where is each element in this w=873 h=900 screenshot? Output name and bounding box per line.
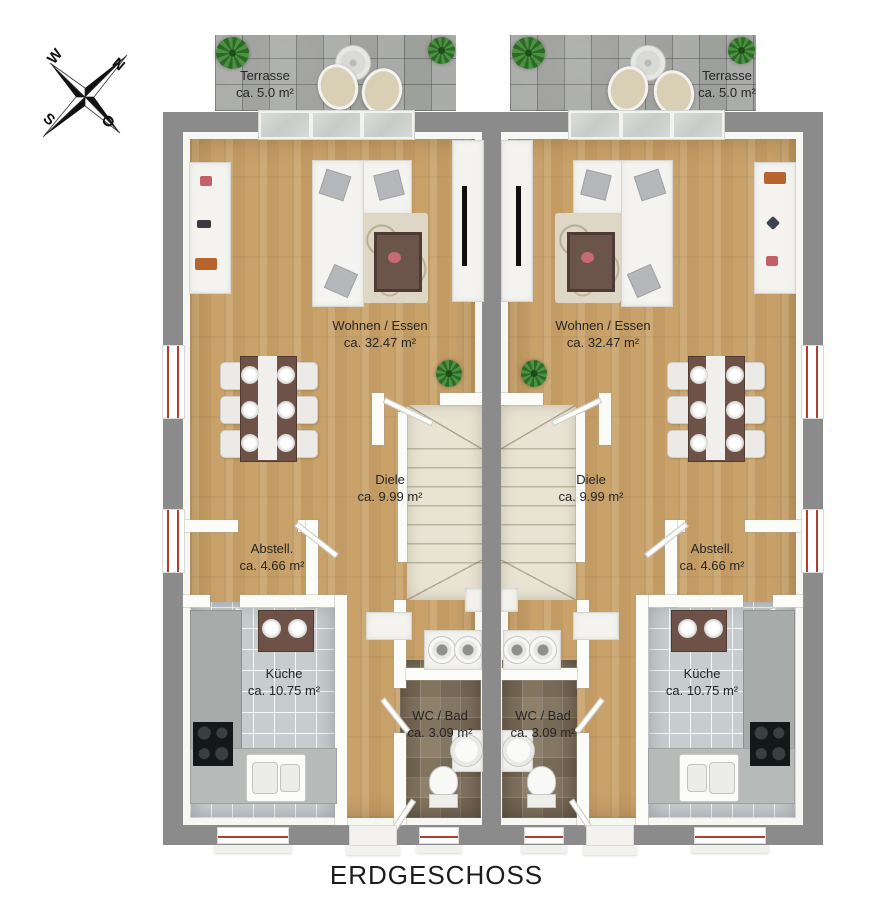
terrace-door-right [568, 110, 725, 140]
terrace-plant-icon [428, 37, 455, 64]
room-area: ca. 3.09 m² [473, 725, 613, 742]
entrance-step [583, 845, 637, 855]
plate [690, 401, 708, 419]
room-name: Diele [521, 472, 661, 489]
kitchen-sink-right [679, 754, 739, 802]
room-label-kueche-left: Küche ca. 10.75 m² [214, 666, 354, 699]
room-area: ca. 4.66 m² [202, 558, 342, 575]
room-area: ca. 4.66 m² [642, 558, 782, 575]
window-kitchen-left [218, 828, 288, 843]
room-label-kueche-right: Küche ca. 10.75 m² [632, 666, 772, 699]
tv-left [462, 186, 467, 266]
stair-landing-top-left [407, 405, 482, 449]
terrace-plant-icon [728, 37, 755, 64]
wall-diele-top-left [440, 393, 482, 405]
window-wc-right [525, 828, 563, 843]
cooktop-left [193, 722, 233, 766]
window-abstell-right [802, 510, 823, 572]
window-living-left [163, 346, 184, 418]
plate [726, 401, 744, 419]
room-label-wohnen-right: Wohnen / Essen ca. 32.47 m² [533, 318, 673, 351]
room-area: ca. 32.47 m² [310, 335, 450, 352]
toilet-tank-right [527, 794, 556, 808]
page-title: ERDGESCHOSS [0, 860, 873, 891]
kitchen-sink-left [246, 754, 306, 802]
plate [726, 366, 744, 384]
room-name: Diele [320, 472, 460, 489]
plate [690, 366, 708, 384]
room-name: Küche [632, 666, 772, 683]
understair-niche-right [501, 588, 518, 612]
room-area: ca. 9.99 m² [320, 489, 460, 506]
room-area: ca. 5.0 m² [195, 85, 335, 102]
room-label-diele-left: Diele ca. 9.99 m² [320, 472, 460, 505]
glass-pane [364, 113, 412, 137]
wall-kitchen-top-left [240, 595, 347, 607]
wall-kitchen-side-right [636, 595, 648, 825]
wall-abstell-right [745, 520, 803, 532]
room-area: ca. 9.99 m² [521, 489, 661, 506]
wall-kitchen-top-right [773, 595, 803, 607]
floorplan-erdgeschoss: W N S O [0, 0, 873, 900]
window-sill [416, 845, 462, 853]
plate [704, 619, 723, 638]
room-name: Terrasse [657, 68, 797, 85]
staircase-steps-left [407, 448, 482, 566]
glass-pane [571, 113, 619, 137]
entrance-step [346, 845, 400, 855]
glass-pane [674, 113, 722, 137]
room-name: Wohnen / Essen [533, 318, 673, 335]
toilet-right [527, 766, 556, 796]
washing-machine-icon [428, 636, 456, 664]
plate [678, 619, 697, 638]
room-label-abstell-right: Abstell. ca. 4.66 m² [642, 541, 782, 574]
washing-machine-icon [503, 636, 531, 664]
entrance-door-left [350, 826, 396, 845]
room-name: Wohnen / Essen [310, 318, 450, 335]
sink-drainer [687, 764, 707, 792]
plate [288, 619, 307, 638]
flower-decor [581, 252, 594, 263]
staircase-steps-right [501, 448, 576, 566]
decor-item [764, 172, 786, 184]
plate [262, 619, 281, 638]
toilet-tank-left [429, 794, 458, 808]
window-sill [521, 845, 567, 853]
terrace-door-left [258, 110, 415, 140]
plate [241, 366, 259, 384]
plate [241, 434, 259, 452]
room-name: WC / Bad [473, 708, 613, 725]
plant-icon [521, 360, 547, 387]
decor-item [195, 258, 217, 270]
wall-kitchen-top-left [183, 595, 210, 607]
entrance-door-right [587, 826, 633, 845]
window-wc-left [420, 828, 458, 843]
plant-icon [436, 360, 462, 387]
wall-kitchen-top-right [636, 595, 743, 607]
hall-wardrobe-right [573, 612, 619, 640]
room-label-terrasse-right: Terrasse ca. 5.0 m² [657, 68, 797, 101]
sink-drainer [280, 764, 300, 792]
plate [277, 434, 295, 452]
glass-pane [623, 113, 671, 137]
hall-wardrobe-left [366, 612, 412, 640]
stair-landing-top-right [501, 405, 576, 449]
understair-niche-left [465, 588, 482, 612]
terrace-plant-icon [216, 37, 249, 69]
room-area: ca. 32.47 m² [533, 335, 673, 352]
table-runner [706, 356, 725, 460]
wall-diele-top-right [501, 393, 543, 405]
plate [277, 366, 295, 384]
room-label-wohnen-left: Wohnen / Essen ca. 32.47 m² [310, 318, 450, 351]
room-label-terrasse-left: Terrasse ca. 5.0 m² [195, 68, 335, 101]
wall-abstell-left [183, 520, 238, 532]
media-wall-left [452, 140, 484, 302]
window-sill [691, 845, 769, 853]
room-name: Abstell. [642, 541, 782, 558]
decor-item [197, 220, 211, 228]
window-abstell-left [163, 510, 184, 572]
terrace-plant-icon [512, 37, 545, 69]
table-runner [258, 356, 277, 460]
room-label-wcbad-right: WC / Bad ca. 3.09 m² [473, 708, 613, 741]
boiler-icon [454, 636, 482, 664]
window-sill [214, 845, 292, 853]
cooktop-right [750, 722, 790, 766]
room-name: Abstell. [202, 541, 342, 558]
glass-pane [313, 113, 361, 137]
room-name: Küche [214, 666, 354, 683]
flower-decor [388, 252, 401, 263]
window-living-right [802, 346, 823, 418]
plate [241, 401, 259, 419]
boiler-icon [529, 636, 557, 664]
room-label-diele-right: Diele ca. 9.99 m² [521, 472, 661, 505]
sink-bowl [709, 762, 735, 794]
window-kitchen-right [695, 828, 765, 843]
toilet-left [429, 766, 458, 796]
plate [726, 434, 744, 452]
glass-pane [261, 113, 309, 137]
plate [277, 401, 295, 419]
decor-item [766, 256, 778, 266]
decor-item [200, 176, 212, 186]
room-area: ca. 5.0 m² [657, 85, 797, 102]
tv-right [516, 186, 521, 266]
room-label-abstell-left: Abstell. ca. 4.66 m² [202, 541, 342, 574]
sink-bowl [252, 762, 278, 794]
room-area: ca. 10.75 m² [632, 683, 772, 700]
room-name: Terrasse [195, 68, 335, 85]
room-area: ca. 10.75 m² [214, 683, 354, 700]
plate [690, 434, 708, 452]
